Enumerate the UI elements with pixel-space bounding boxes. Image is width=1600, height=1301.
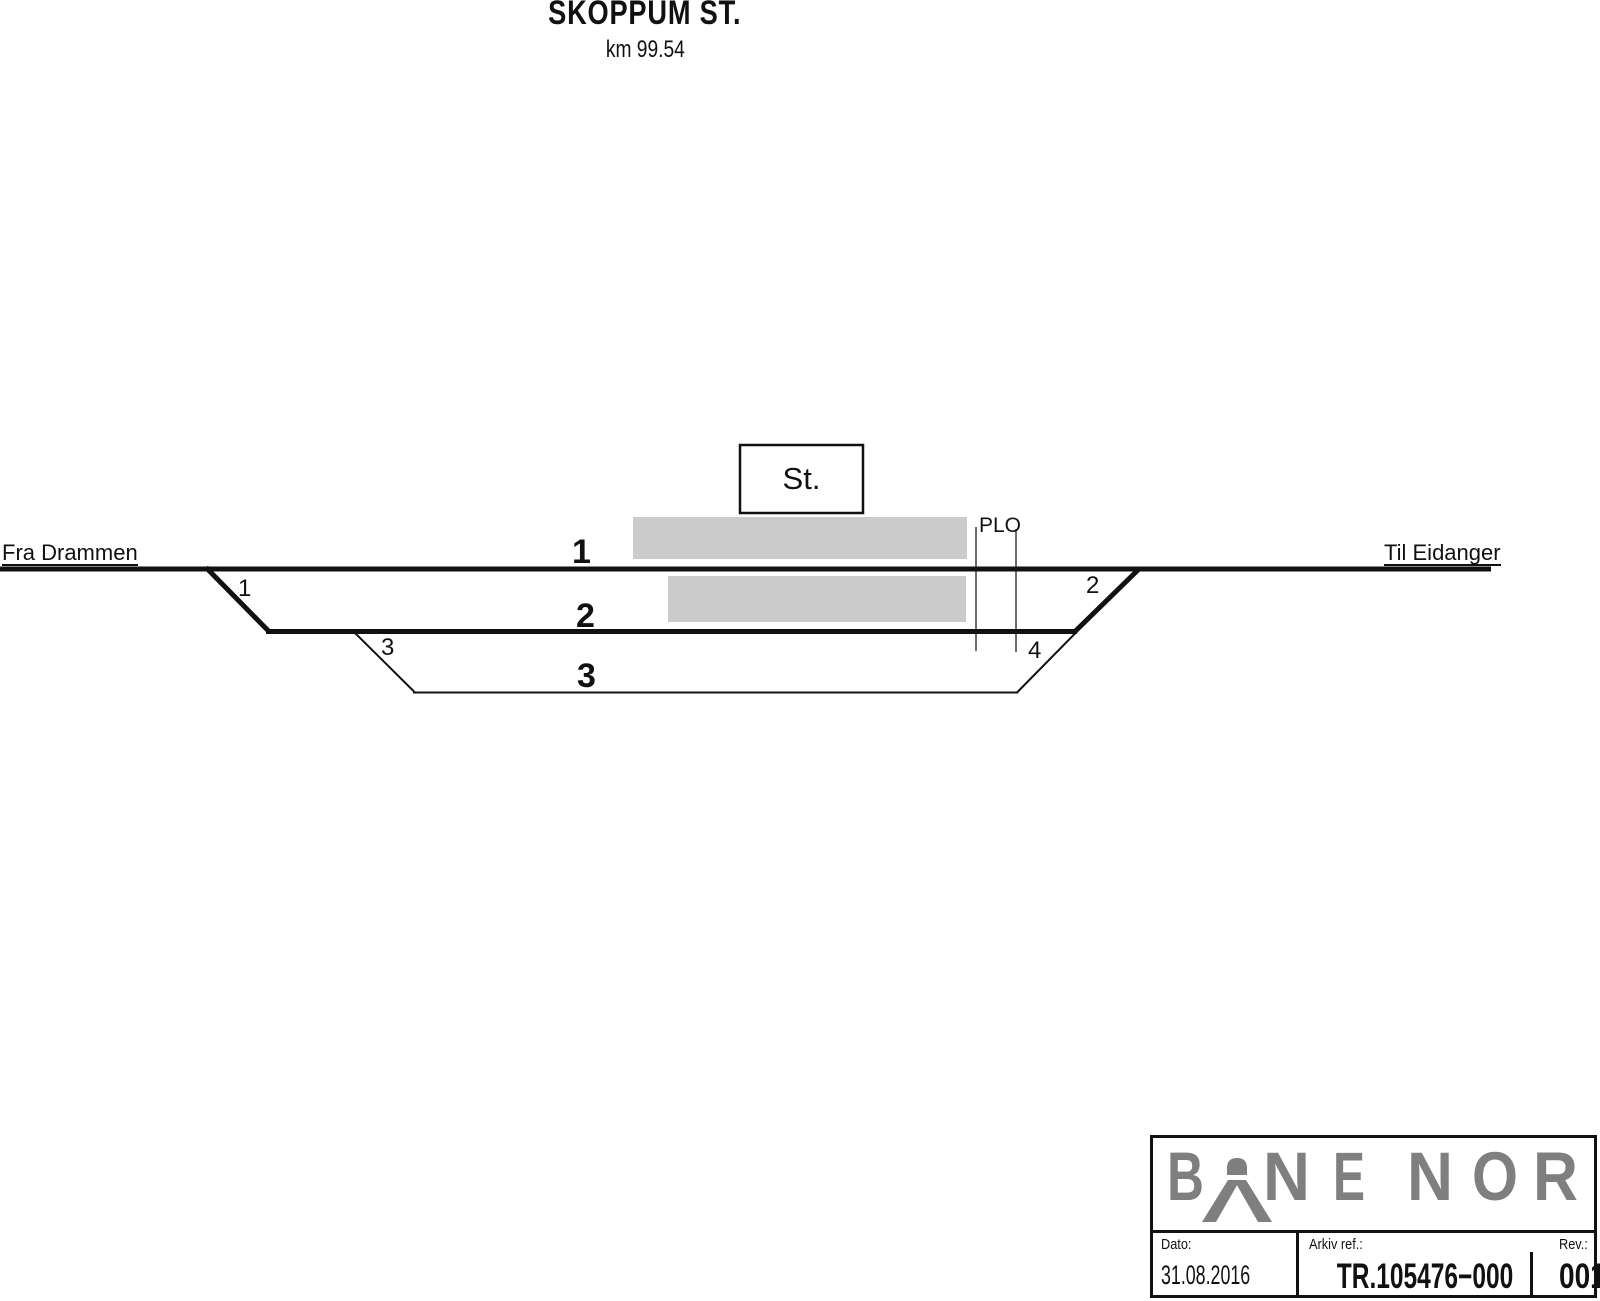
switch-3-number: 3 — [381, 636, 394, 660]
switch-4-number: 4 — [1028, 639, 1041, 663]
platform-2 — [668, 576, 966, 622]
revision-label: Rev.: — [1559, 1237, 1600, 1254]
a-symbol-left-leg — [1202, 1180, 1240, 1222]
banenor-logo-glyphs: B N E N O R — [1167, 1138, 1578, 1222]
revision-cell: Rev.: 001 — [1551, 1233, 1600, 1295]
drawing-canvas: SKOPPUM ST. km 99.54 Fra Drammen Til Eid… — [0, 0, 1600, 1301]
date-label: Dato: — [1161, 1237, 1276, 1254]
logo-letter-n1: N — [1263, 1138, 1310, 1215]
station-box-label: St. — [740, 445, 863, 513]
track-3-number: 3 — [577, 659, 596, 693]
platform-1 — [633, 517, 967, 559]
track-2-number: 2 — [576, 599, 595, 633]
revision-value-wrap: 001 — [1559, 1259, 1600, 1294]
logo-row: B N E N O R — [1153, 1138, 1594, 1230]
switch-4-diagonal — [1017, 632, 1077, 693]
from-direction-label: Fra Drammen — [2, 541, 138, 566]
to-direction-label: Til Eidanger — [1384, 541, 1501, 566]
archive-ref-cell: Arkiv ref.: TR.105476−000 — [1299, 1233, 1551, 1295]
revision-divider — [1530, 1252, 1533, 1295]
logo-letter-o: O — [1472, 1138, 1518, 1215]
logo-letter-r: R — [1533, 1138, 1578, 1215]
logo-letter-e: E — [1333, 1138, 1365, 1215]
date-cell: Dato: 31.08.2016 — [1153, 1233, 1299, 1295]
a-symbol-dome — [1227, 1158, 1247, 1175]
banenor-a-symbol — [1202, 1158, 1272, 1222]
title-block: B N E N O R Dato: 31.08.2016 — [1150, 1135, 1597, 1298]
logo-letter-b: B — [1167, 1138, 1204, 1215]
track-schematic — [0, 0, 1600, 1301]
level-crossing-label: PLO — [979, 515, 1021, 536]
archive-ref-value: TR.105476−000 — [1337, 1259, 1513, 1294]
archive-ref-label: Arkiv ref.: — [1309, 1237, 1515, 1254]
switch-1-number: 1 — [238, 577, 251, 601]
logo-letter-n2: N — [1407, 1138, 1453, 1215]
banenor-logo: B N E N O R — [1153, 1138, 1594, 1230]
archive-ref-value-wrap: TR.105476−000 — [1299, 1259, 1551, 1294]
revision-value: 001 — [1559, 1259, 1600, 1294]
switch-2-diagonal — [1075, 568, 1140, 632]
title-block-fields: Dato: 31.08.2016 Arkiv ref.: TR.105476−0… — [1153, 1230, 1594, 1295]
date-value: 31.08.2016 — [1161, 1262, 1250, 1289]
track-1-number: 1 — [572, 535, 591, 569]
switch-2-number: 2 — [1086, 574, 1099, 598]
